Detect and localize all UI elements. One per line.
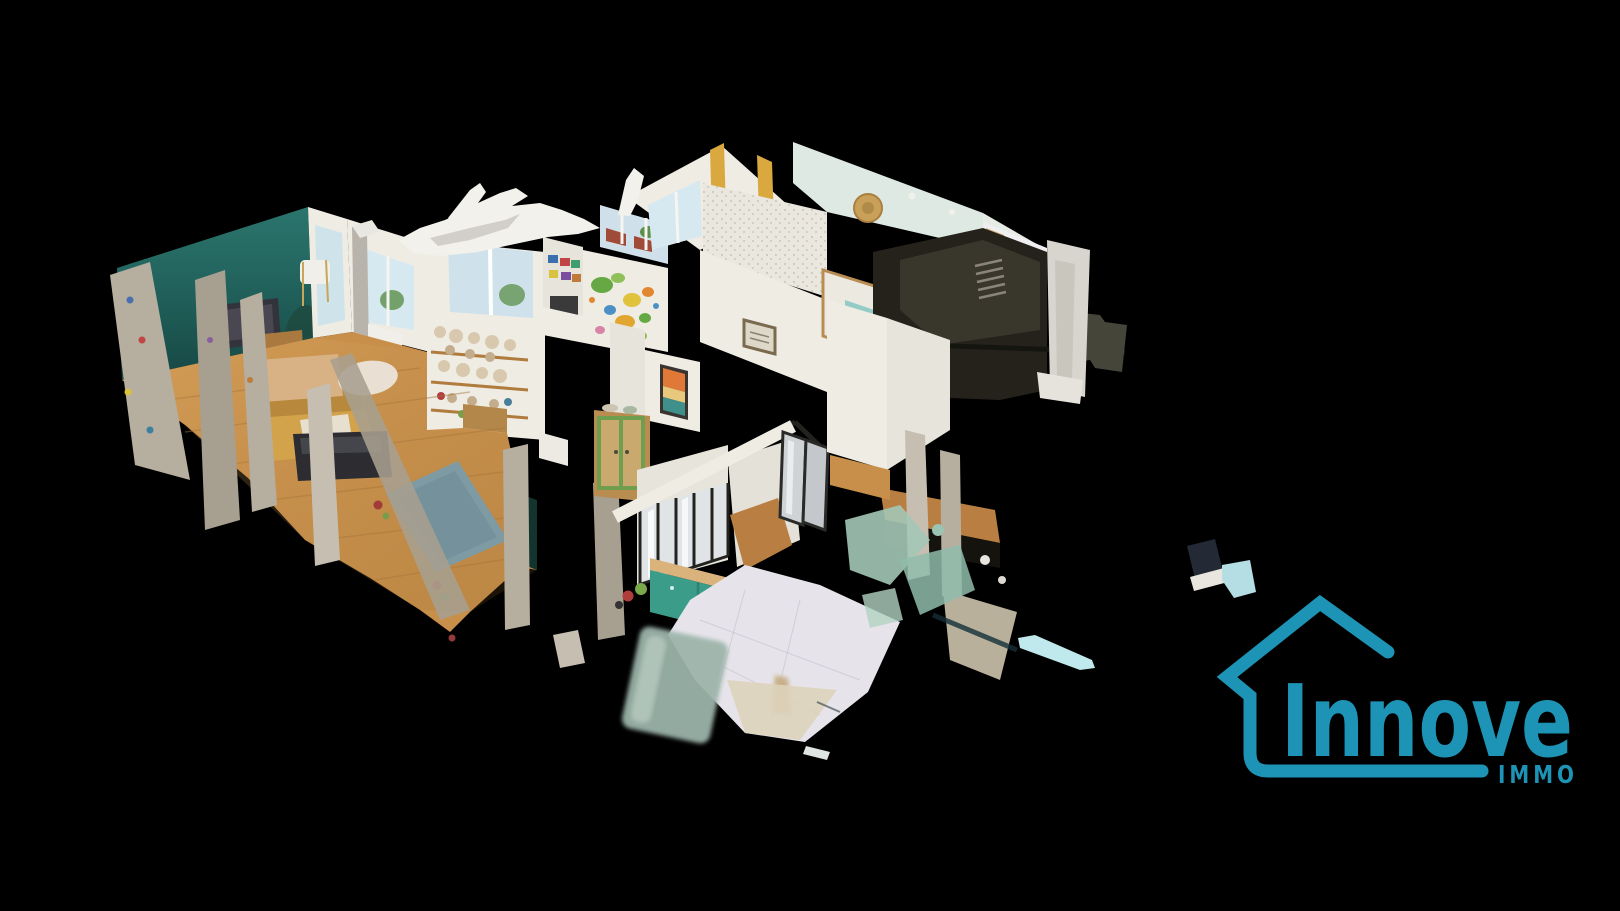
cyan-streak [1018, 635, 1095, 670]
curtain [352, 227, 369, 347]
viewer-stage: Innove IMMO [0, 0, 1620, 911]
brand-logo: Innove IMMO [1227, 603, 1578, 789]
brand-sub: IMMO [1498, 760, 1578, 789]
dollhouse-3d-view[interactable]: Innove IMMO [0, 0, 1620, 911]
wicker-decor [854, 194, 882, 222]
travel-poster [660, 364, 688, 420]
frosted-door [620, 625, 730, 745]
radiator [539, 432, 568, 466]
mirror-panels [780, 432, 828, 530]
